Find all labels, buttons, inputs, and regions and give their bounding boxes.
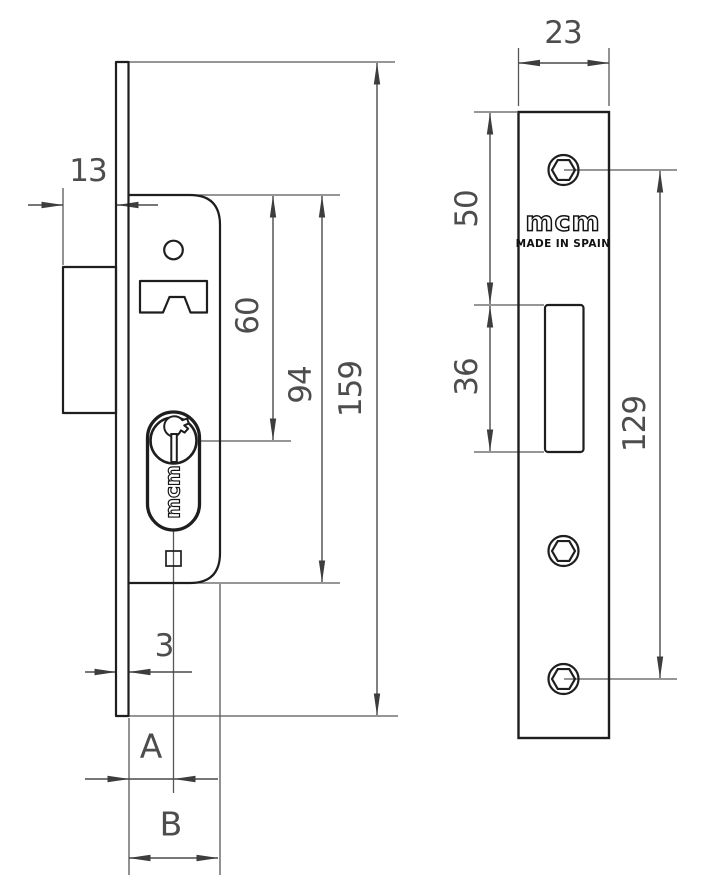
faceplate-side (116, 62, 129, 716)
dim-faceplate-length: 159 (333, 63, 377, 715)
dim-label-23: 23 (544, 15, 581, 51)
hex-socket-icon (552, 541, 575, 561)
dim-label-129: 129 (617, 396, 653, 452)
dim-bolt-protrusion: 13 (28, 153, 158, 205)
dim-cutout-length: 36 (449, 306, 490, 451)
dim-top-to-cutout: 50 (449, 113, 490, 304)
dim-label-B: B (160, 805, 183, 844)
drawing-svg: 13 60 94 159 3 A (0, 0, 720, 896)
dim-top-to-cylinder: 60 (230, 196, 273, 440)
brand-logo: mcm (525, 206, 600, 237)
screw-hole-bottom (549, 664, 579, 694)
dim-label-13: 13 (69, 153, 106, 189)
screw-hole-top (549, 155, 579, 185)
dim-label-3: 3 (155, 628, 174, 664)
dim-case-length: 94 (283, 196, 322, 582)
follower-notch (140, 281, 207, 313)
strike-cutout (545, 305, 584, 452)
side-view: 13 60 94 159 3 A (28, 62, 398, 875)
dim-label-36: 36 (449, 358, 485, 395)
screw-hole-middle (549, 536, 579, 566)
dim-label-159: 159 (333, 361, 369, 417)
lock-case (129, 195, 221, 583)
front-view: 23 50 36 129 (449, 15, 677, 738)
dim-case-depth: B (129, 805, 218, 858)
dim-label-A: A (140, 727, 163, 766)
dim-label-50: 50 (449, 190, 485, 227)
lock-technical-drawing: 13 60 94 159 3 A (0, 0, 720, 896)
dim-faceplate-thickness: 3 (85, 628, 192, 672)
key-stem (171, 434, 177, 462)
mounting-hole (164, 241, 183, 260)
deadbolt (63, 267, 116, 413)
dim-screw-spacing: 129 (617, 171, 660, 678)
made-in-spain-label: MADE IN SPAIN (516, 238, 611, 250)
dim-faceplate-width: 23 (519, 15, 610, 63)
cylinder-brand-text: mcm (161, 465, 185, 519)
cylinder: mcm (148, 412, 200, 530)
dim-backset: A (85, 727, 218, 779)
dim-label-60: 60 (230, 297, 266, 334)
dim-label-94: 94 (283, 366, 319, 403)
